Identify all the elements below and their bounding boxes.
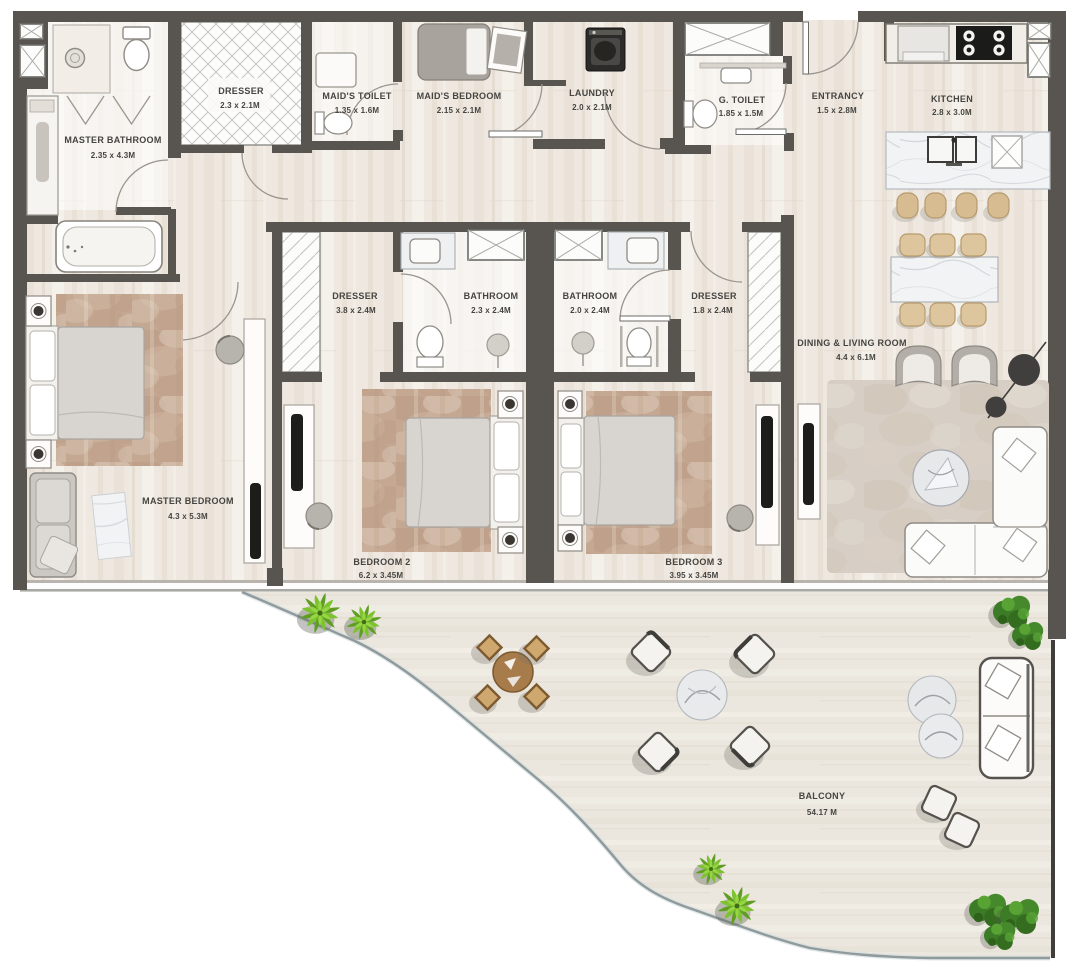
svg-text:2.3 x 2.1M: 2.3 x 2.1M xyxy=(220,101,260,110)
svg-text:BATHROOM: BATHROOM xyxy=(563,291,618,301)
svg-text:3.8 x 2.4M: 3.8 x 2.4M xyxy=(336,306,376,315)
svg-text:G. TOILET: G. TOILET xyxy=(719,95,766,105)
svg-text:DRESSER: DRESSER xyxy=(218,86,264,96)
svg-text:4.4 x 6.1M: 4.4 x 6.1M xyxy=(836,353,876,362)
svg-text:1.85 x 1.5M: 1.85 x 1.5M xyxy=(719,109,764,118)
svg-text:BATHROOM: BATHROOM xyxy=(464,291,519,301)
svg-text:MAID'S TOILET: MAID'S TOILET xyxy=(322,91,392,101)
svg-text:2.0 x 2.1M: 2.0 x 2.1M xyxy=(572,103,612,112)
svg-text:KITCHEN: KITCHEN xyxy=(931,94,973,104)
svg-text:1.5 x 2.8M: 1.5 x 2.8M xyxy=(817,106,857,115)
svg-text:2.3 x 2.4M: 2.3 x 2.4M xyxy=(471,306,511,315)
svg-text:2.8 x 3.0M: 2.8 x 3.0M xyxy=(932,108,972,117)
svg-text:3.95 x 3.45M: 3.95 x 3.45M xyxy=(669,571,718,580)
svg-text:DINING & LIVING ROOM: DINING & LIVING ROOM xyxy=(797,338,907,348)
svg-text:2.15 x 2.1M: 2.15 x 2.1M xyxy=(437,106,482,115)
svg-text:MAID'S BEDROOM: MAID'S BEDROOM xyxy=(417,91,502,101)
svg-text:2.0 x 2.4M: 2.0 x 2.4M xyxy=(570,306,610,315)
svg-text:4.3 x 5.3M: 4.3 x 5.3M xyxy=(168,512,208,521)
svg-text:MASTER BATHROOM: MASTER BATHROOM xyxy=(64,135,161,145)
svg-text:BEDROOM 2: BEDROOM 2 xyxy=(353,557,410,567)
svg-text:LAUNDRY: LAUNDRY xyxy=(569,88,615,98)
svg-text:BALCONY: BALCONY xyxy=(799,791,846,801)
svg-text:2.35 x 4.3M: 2.35 x 4.3M xyxy=(91,151,136,160)
svg-text:BEDROOM 3: BEDROOM 3 xyxy=(665,557,722,567)
svg-text:1.35 x 1.6M: 1.35 x 1.6M xyxy=(335,106,380,115)
svg-text:6.2 x 3.45M: 6.2 x 3.45M xyxy=(359,571,404,580)
svg-text:DRESSER: DRESSER xyxy=(691,291,737,301)
svg-text:MASTER BEDROOM: MASTER BEDROOM xyxy=(142,496,234,506)
svg-text:1.8 x 2.4M: 1.8 x 2.4M xyxy=(693,306,733,315)
svg-text:ENTRANCY: ENTRANCY xyxy=(812,91,864,101)
svg-text:54.17 M: 54.17 M xyxy=(807,808,837,817)
svg-text:DRESSER: DRESSER xyxy=(332,291,378,301)
